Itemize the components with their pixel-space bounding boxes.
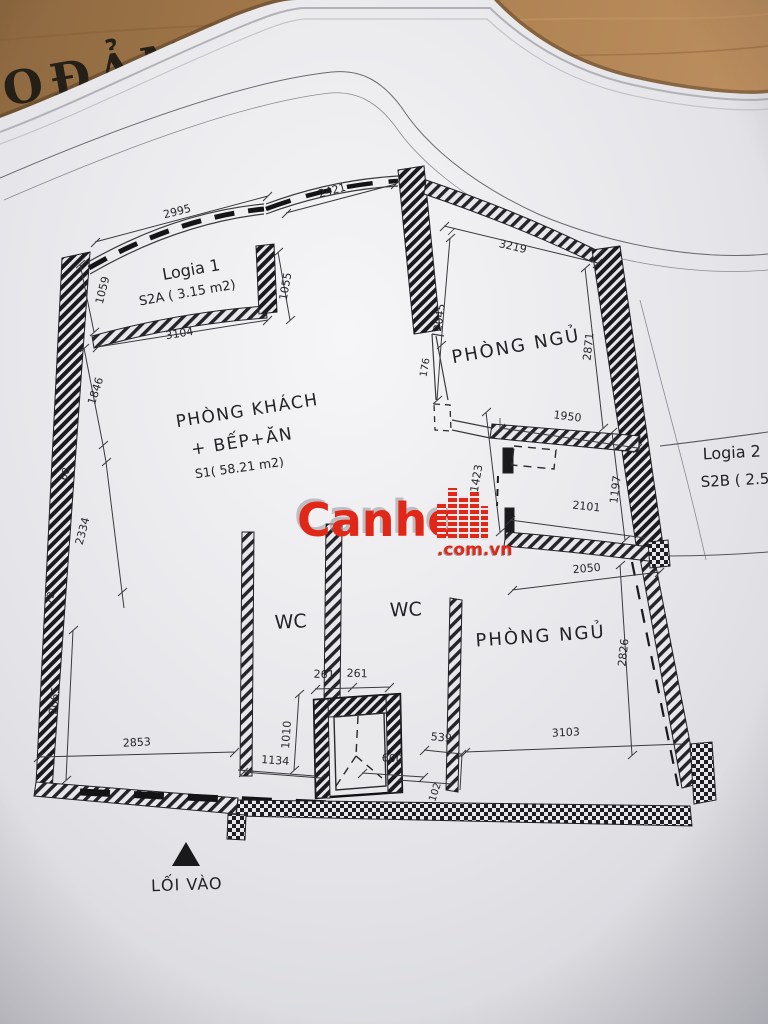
- floorplan-photo: OĐẢM: [0, 0, 768, 1024]
- photo-vignette: [0, 0, 768, 1024]
